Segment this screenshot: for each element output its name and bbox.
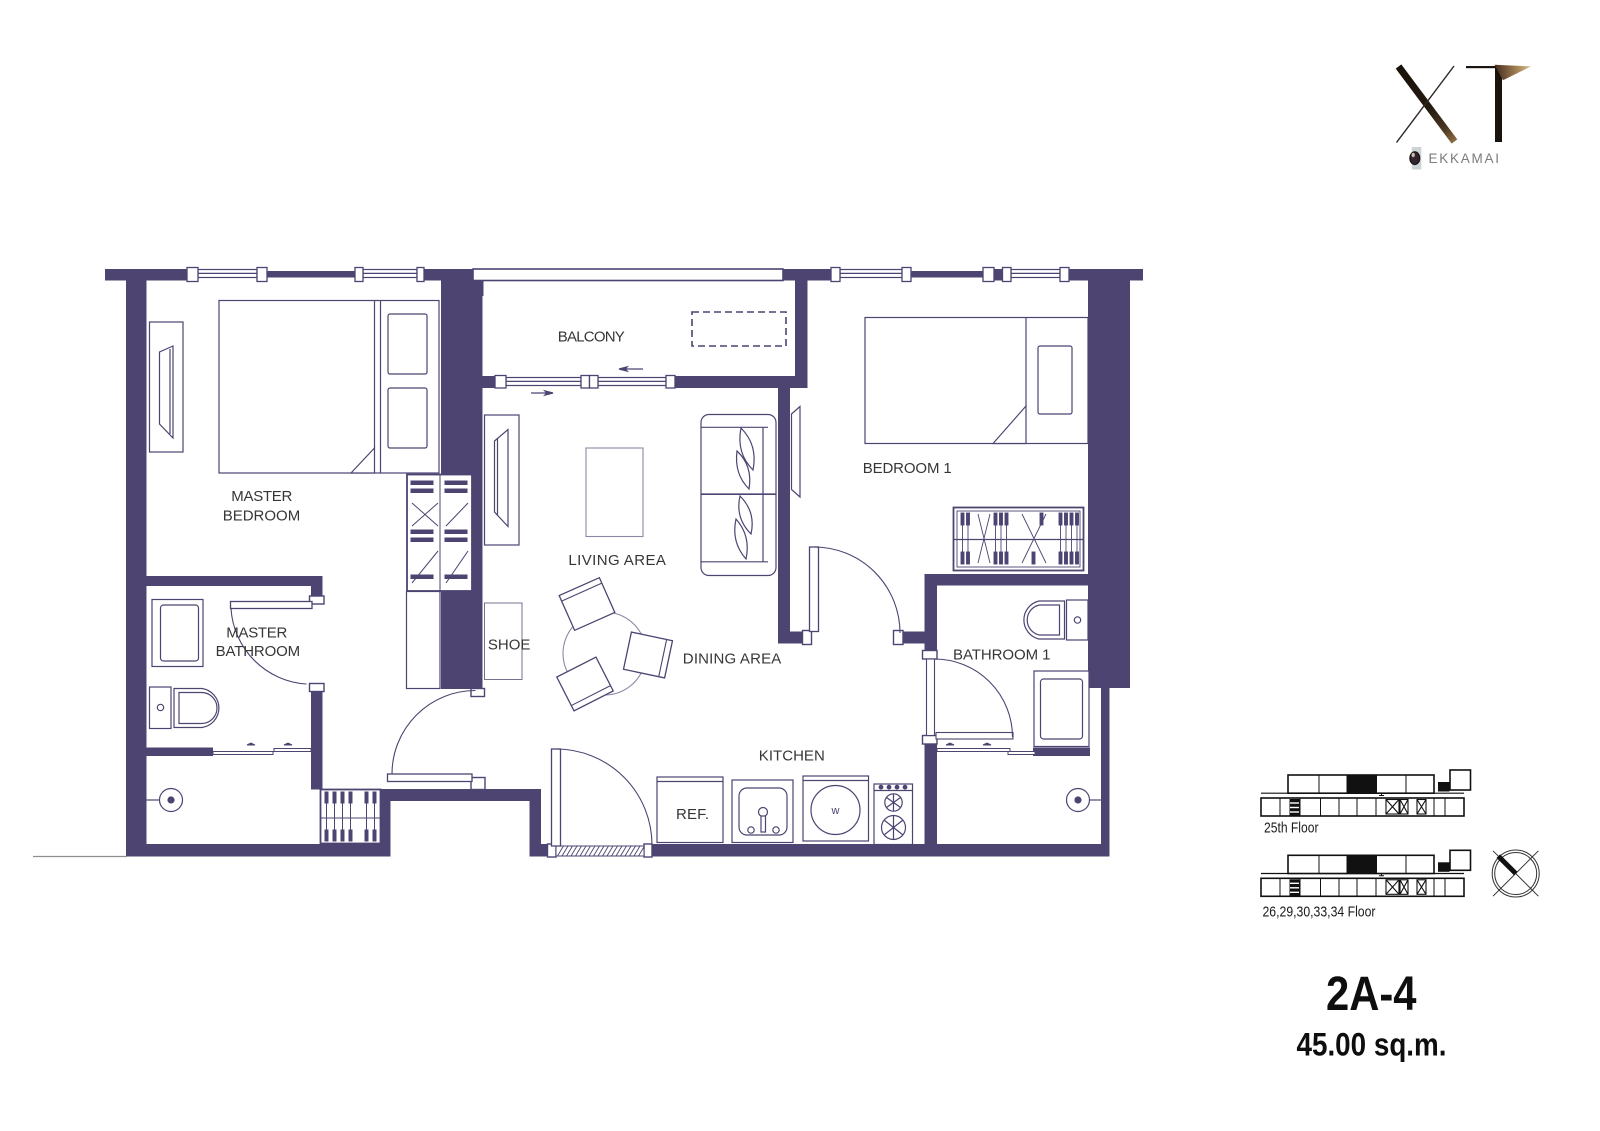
svg-text:w: w	[831, 805, 840, 817]
svg-text:25th Floor: 25th Floor	[1264, 820, 1319, 837]
svg-text:MASTER: MASTER	[226, 625, 287, 642]
svg-text:EKKAMAI: EKKAMAI	[1429, 151, 1500, 166]
svg-text:BATHROOM: BATHROOM	[216, 643, 301, 660]
svg-text:45.00 sq.m.: 45.00 sq.m.	[1297, 1027, 1447, 1063]
svg-text:REF.: REF.	[676, 806, 709, 823]
svg-text:KITCHEN: KITCHEN	[759, 748, 825, 765]
svg-text:LIVING AREA: LIVING AREA	[568, 552, 666, 569]
svg-text:DINING AREA: DINING AREA	[683, 651, 782, 668]
svg-text:BATHROOM 1: BATHROOM 1	[953, 647, 1051, 664]
svg-text:BEDROOM: BEDROOM	[223, 508, 301, 525]
svg-text:2A-4: 2A-4	[1326, 968, 1417, 1021]
svg-text:26,29,30,33,34 Floor: 26,29,30,33,34 Floor	[1263, 904, 1376, 921]
svg-text:BEDROOM 1: BEDROOM 1	[863, 460, 952, 477]
svg-text:MASTER: MASTER	[231, 488, 292, 505]
svg-text:BALCONY: BALCONY	[558, 328, 625, 345]
svg-text:SHOE: SHOE	[488, 637, 531, 654]
